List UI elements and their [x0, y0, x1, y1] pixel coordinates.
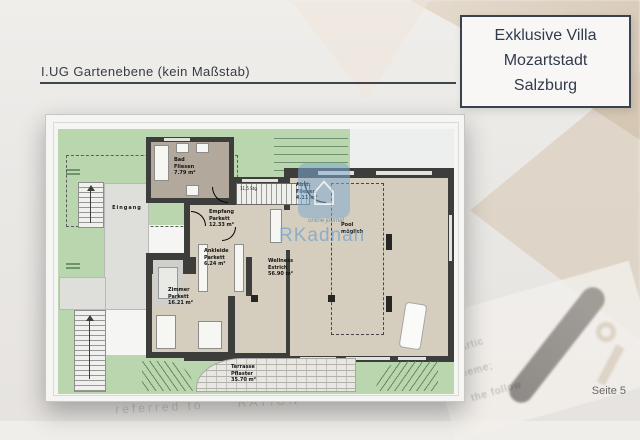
sink: [176, 143, 189, 153]
page-number: Seite 5: [592, 385, 626, 397]
wardrobe: [234, 244, 244, 292]
title-box-line: Salzburg: [462, 74, 629, 99]
stairs-direction-line: [90, 191, 91, 223]
background-architecture-shape-2: [290, 0, 430, 100]
column: [386, 296, 392, 312]
room-label-wellness: Wellness Estrich 56.90 m²: [268, 258, 293, 278]
floorplan: Eingang 11,5 Stg Bad: [45, 114, 465, 402]
column: [328, 295, 335, 302]
furniture: [198, 321, 222, 349]
plant-mark: [66, 263, 80, 269]
stairs-arrow-icon: [86, 315, 94, 321]
room-label-bad: Bad Fliesen 7.79 m²: [174, 157, 195, 177]
title-box: Exklusive Villa Mozartstadt Salzburg: [460, 15, 631, 108]
bathtub: [154, 145, 169, 181]
entrance-path: [104, 183, 149, 310]
room-label-empfang: Empfang Parkett 12.33 m²: [209, 209, 234, 229]
room-label-eingang: Eingang: [106, 205, 148, 212]
watermark-brand: RKadnan: [279, 225, 365, 247]
window: [376, 171, 432, 175]
terrace-door-glass: [398, 357, 426, 360]
sink: [196, 143, 209, 153]
room-label-ankleide: Ankleide Parkett 6.24 m²: [204, 248, 229, 268]
column: [386, 234, 392, 250]
background-key: [596, 322, 616, 342]
window: [164, 138, 190, 141]
house-icon: ⌂: [298, 163, 350, 218]
title-box-line: Exklusive Villa: [462, 24, 629, 49]
stair-landing: [59, 277, 106, 310]
toilet: [186, 185, 199, 196]
stairs-note: 11,5 Stg: [240, 186, 257, 191]
room-label-terrasse: Terrasse Pflaster 35.70 m²: [231, 364, 256, 384]
room-wellness-part: [235, 296, 286, 353]
column: [251, 295, 258, 302]
watermark-subtitle: online journal: [294, 218, 358, 224]
bed: [156, 315, 176, 349]
title-box-line: Mozartstadt: [462, 49, 629, 74]
terrace: [196, 358, 356, 392]
stairs-arrow-icon: [87, 185, 95, 191]
header-rule: [40, 82, 456, 84]
window: [242, 179, 278, 182]
stairs-direction-line: [89, 321, 90, 379]
room-label-zimmer: Zimmer Parkett 16.21 m²: [168, 287, 193, 307]
exterior-stairs-lower: [74, 310, 106, 392]
window: [449, 215, 452, 261]
page-title: I.UG Gartenebene (kein Maßstab): [41, 64, 250, 79]
